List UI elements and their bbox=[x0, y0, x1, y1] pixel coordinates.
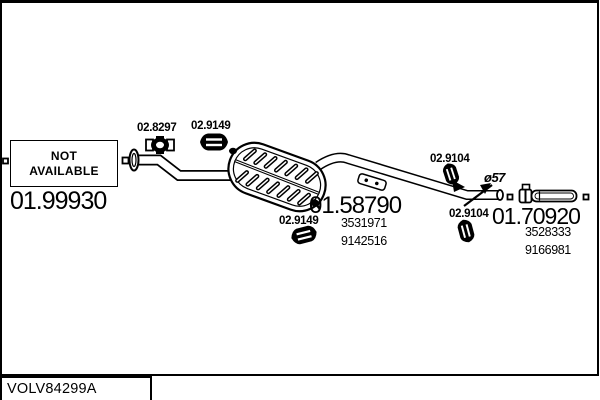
exhaust-system-diagram: NOT AVAILABLE 01.99930 01.58790 01.70920… bbox=[0, 0, 600, 400]
part-label-hanger-top: 02.9149 bbox=[191, 120, 230, 132]
drawing-code: VOLV84299A bbox=[2, 381, 97, 397]
diameter-label: ø57 bbox=[484, 170, 505, 185]
connector-square bbox=[508, 195, 513, 200]
not-available-box: NOT AVAILABLE bbox=[10, 140, 118, 187]
part-ref-middle-silencer: 01.58790 bbox=[309, 194, 401, 218]
part-ref-front-pipe: 01.99930 bbox=[10, 189, 106, 213]
hanger-icon-top bbox=[200, 134, 228, 151]
front-pipe bbox=[130, 150, 245, 176]
part-label-clamp: 02.8297 bbox=[137, 122, 176, 134]
oe-number: 9142516 bbox=[341, 235, 387, 248]
flange bbox=[130, 150, 139, 171]
pipe-bracket bbox=[357, 173, 387, 191]
clamp-icon bbox=[146, 136, 174, 154]
hanger-icon-right-top bbox=[441, 161, 461, 186]
oe-number: 3528333 bbox=[525, 226, 571, 239]
part-label-hanger-middle: 02.9149 bbox=[279, 215, 318, 227]
not-available-line1: NOT bbox=[51, 149, 77, 164]
connector-square bbox=[123, 158, 129, 164]
connector-square bbox=[584, 195, 589, 200]
oe-number: 9166981 bbox=[525, 244, 571, 257]
drawing-code-box: VOLV84299A bbox=[0, 376, 152, 400]
hanger-icon-right-bottom bbox=[456, 218, 476, 244]
hanger-icon-middle bbox=[289, 224, 318, 246]
part-label-hanger-right-bottom: 02.9104 bbox=[449, 208, 488, 220]
not-available-line2: AVAILABLE bbox=[29, 164, 99, 179]
connector-square bbox=[3, 159, 8, 164]
part-label-hanger-right-top: 02.9104 bbox=[430, 153, 469, 165]
oe-number: 3531971 bbox=[341, 217, 387, 230]
pipe-end-cap bbox=[497, 190, 503, 200]
tail-pipe bbox=[520, 185, 577, 203]
silencer-pin-front bbox=[229, 148, 237, 154]
